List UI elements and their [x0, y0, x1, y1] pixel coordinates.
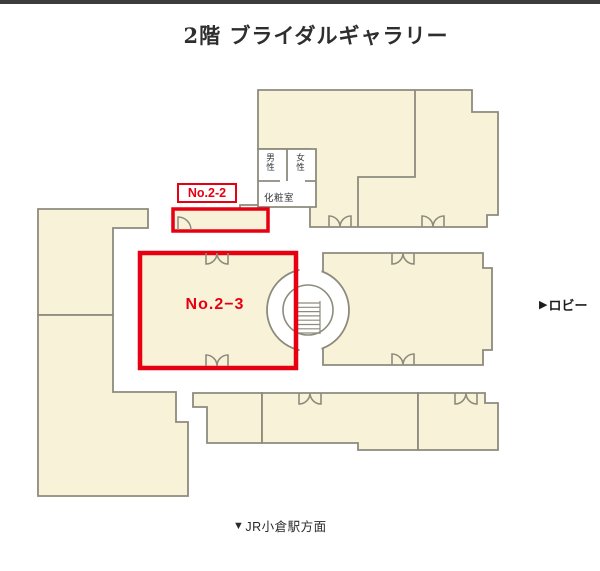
- powder-room-label: 化粧室: [264, 190, 294, 204]
- room-bottom-left: [193, 393, 262, 443]
- room-no2-2-label: No.2-2: [188, 186, 226, 200]
- station-direction-text: JR小倉駅方面: [245, 516, 326, 535]
- floorplan-page: 2階 ブライダルギャラリー: [0, 0, 600, 571]
- lobby-direction: ▶ ロビー: [539, 295, 587, 314]
- station-direction: ▼ JR小倉駅方面: [233, 516, 327, 535]
- room-upper-left: [38, 209, 148, 315]
- room-bottom-right: [418, 393, 498, 450]
- stair-inner-circle: [283, 285, 333, 335]
- lobby-direction-text: ロビー: [548, 295, 587, 314]
- toilet-women-label: 女性: [296, 153, 305, 172]
- room-bottom-middle: [262, 393, 418, 450]
- floorplan-svg: [0, 0, 600, 571]
- station-arrow-icon: ▼: [233, 520, 244, 532]
- room-no2-2-tag: No.2-2: [177, 183, 237, 203]
- room-no2-3-label: No.2−3: [186, 296, 245, 314]
- toilet-men-label: 男性: [266, 153, 275, 172]
- lobby-arrow-icon: ▶: [539, 298, 547, 311]
